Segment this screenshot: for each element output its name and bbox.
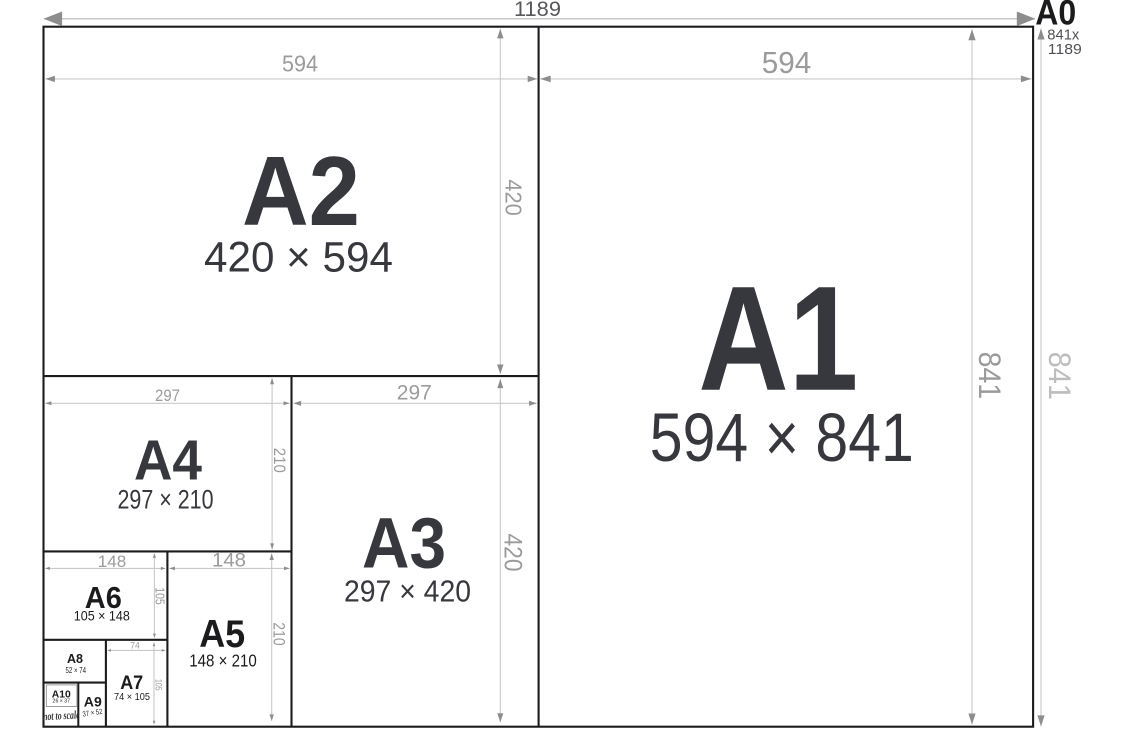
svg-text:1189: 1189 — [1048, 41, 1082, 58]
svg-text:26 × 37: 26 × 37 — [53, 699, 71, 705]
svg-text:594: 594 — [282, 51, 318, 77]
svg-text:420: 420 — [499, 534, 527, 572]
svg-text:148: 148 — [98, 552, 127, 571]
svg-text:A3: A3 — [362, 504, 446, 584]
svg-text:297: 297 — [397, 381, 432, 404]
svg-text:297 × 210: 297 × 210 — [118, 484, 214, 514]
svg-text:594: 594 — [762, 45, 812, 80]
svg-text:841: 841 — [1042, 352, 1078, 400]
svg-text:841: 841 — [972, 352, 1008, 400]
svg-text:105: 105 — [152, 679, 163, 691]
svg-text:1189: 1189 — [514, 0, 561, 21]
svg-text:52 × 74: 52 × 74 — [66, 665, 87, 675]
svg-text:105 × 148: 105 × 148 — [74, 607, 130, 623]
svg-text:A8: A8 — [67, 652, 83, 666]
svg-text:A4: A4 — [134, 428, 202, 492]
svg-text:210: 210 — [270, 448, 288, 473]
svg-text:148: 148 — [212, 551, 246, 572]
svg-text:148 × 210: 148 × 210 — [189, 650, 257, 670]
svg-text:A2: A2 — [242, 136, 360, 246]
svg-text:594 × 841: 594 × 841 — [650, 399, 914, 476]
svg-text:297: 297 — [155, 386, 180, 405]
svg-text:210: 210 — [269, 622, 287, 646]
svg-text:420 × 594: 420 × 594 — [204, 233, 393, 281]
svg-text:74 × 105: 74 × 105 — [114, 691, 150, 703]
svg-text:not to scale: not to scale — [43, 709, 80, 723]
svg-text:74: 74 — [130, 640, 140, 650]
svg-text:420: 420 — [501, 179, 527, 216]
svg-text:297 × 420: 297 × 420 — [344, 574, 471, 609]
svg-text:105: 105 — [153, 587, 167, 605]
svg-text:A1: A1 — [698, 255, 858, 422]
